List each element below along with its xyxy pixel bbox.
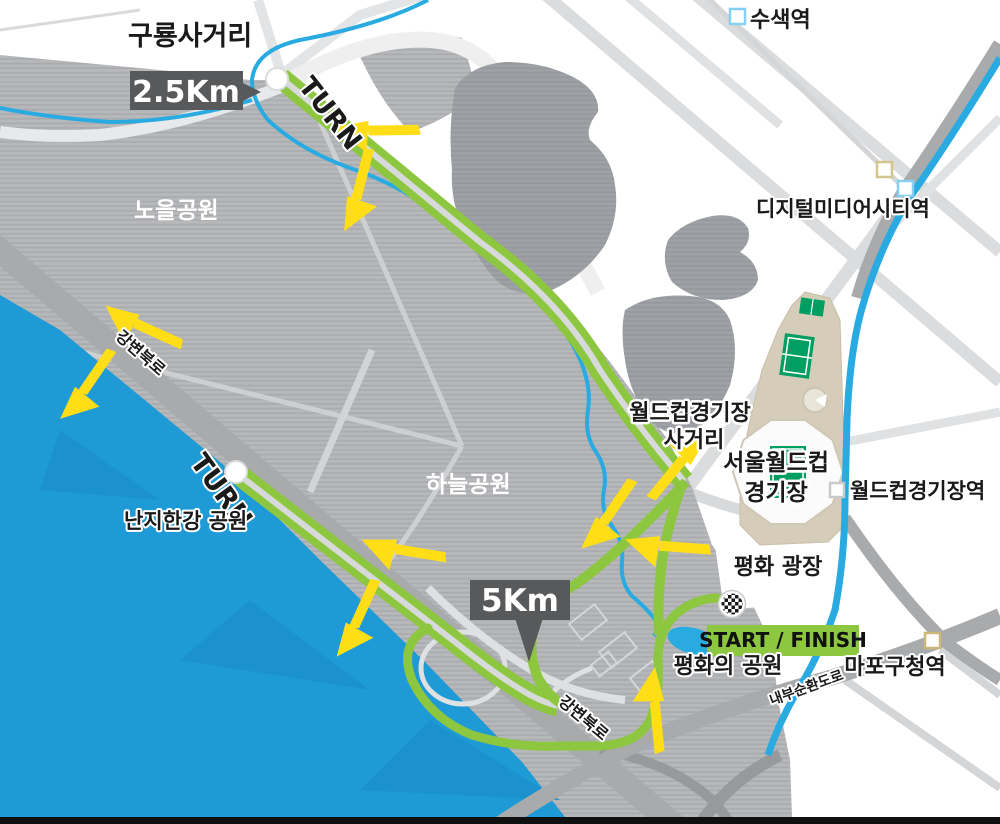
label-seoul-worldcup-1: 서울월드컵 <box>723 450 829 476</box>
label-seoul-worldcup-2: 경기장 <box>744 480 807 506</box>
label-susaek-station: 수색역 <box>750 8 811 33</box>
label-haneul-park: 하늘공원 <box>426 472 511 498</box>
label-guryong-intersection: 구룡사거리 <box>128 21 252 52</box>
label-pyeonghwa-park: 평화의 공원 <box>674 654 783 679</box>
bottom-road-bar <box>0 817 1000 824</box>
label-mapo-gu-office-station: 마포구청역 <box>844 655 945 680</box>
label-pyeonghwa-plaza: 평화 광장 <box>734 555 823 580</box>
station-marker-icon <box>830 483 844 497</box>
soccer-field-small-icon <box>799 297 825 316</box>
km-marker-2-5: 2.5Km <box>130 71 261 110</box>
label-nanji-hangang-park: 난지한강 공원 <box>124 509 247 533</box>
start-finish-label: START / FINISH <box>699 628 867 652</box>
km-2-5-label: 2.5Km <box>132 75 240 110</box>
label-noeul-park: 노을공원 <box>134 198 219 224</box>
race-course-map: 2.5Km 5Km START / FINISH TURN TURN 구룡사거리… <box>0 0 1000 824</box>
station-marker-icon <box>898 181 913 196</box>
station-marker-icon <box>925 633 940 648</box>
label-dmc-station: 디지털미디어시티역 <box>756 197 930 221</box>
station-marker-icon <box>730 9 745 24</box>
label-worldcup-stadium-station: 월드컵경기장역 <box>850 479 985 503</box>
label-worldcup-intersection-2: 사거리 <box>664 428 725 453</box>
turn-point-marker-north <box>266 68 288 90</box>
station-marker-icon <box>877 162 892 177</box>
soccer-field-icon <box>779 333 815 379</box>
label-worldcup-intersection-1: 월드컵경기장 <box>629 401 750 426</box>
km-5-label: 5Km <box>481 583 559 619</box>
start-finish-banner: START / FINISH <box>699 625 867 656</box>
start-finish-checkered-marker <box>719 591 746 618</box>
map-canvas: 2.5Km 5Km START / FINISH TURN TURN 구룡사거리… <box>0 0 1000 824</box>
